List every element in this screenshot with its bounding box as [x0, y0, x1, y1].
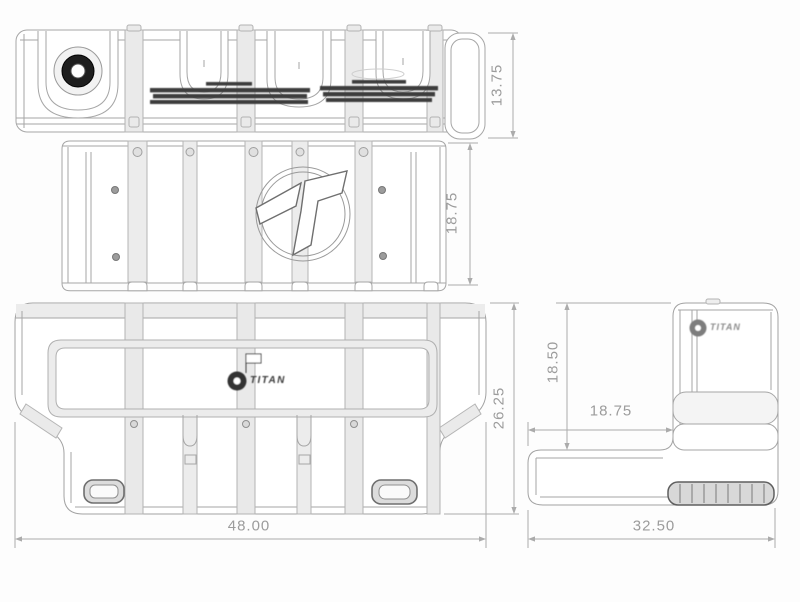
dim-label-bottom-width: 48.00: [228, 518, 271, 535]
fuel-cap-icon: [54, 47, 102, 95]
dim-label-side-leg: 18.75: [590, 403, 633, 420]
titan-wordmark-bottom: TITAN: [250, 375, 286, 386]
titan-logo-side-icon: [690, 320, 707, 337]
dim-label-top-height: 13.75: [489, 64, 506, 107]
bottom-view: [15, 303, 519, 548]
dim-label-front-height: 18.75: [444, 192, 461, 235]
titan-wordmark-side: TITAN: [710, 322, 741, 332]
side-view: [528, 299, 778, 548]
dim-label-side-height: 18.50: [545, 341, 562, 384]
dim-label-bottom-depth: 26.25: [491, 387, 508, 430]
dim-label-side-width: 32.50: [633, 518, 676, 535]
dim-side-height-lines: [556, 303, 671, 450]
drawing-canvas: 13.75 18.75 26.25 48.00 18.50 18.75 32.5…: [0, 0, 800, 602]
ribbed-fitting: [668, 482, 774, 505]
dim-side-leg-lines: [528, 422, 673, 446]
front-view: [62, 141, 478, 291]
top-view: [16, 25, 518, 139]
technical-drawing: [0, 0, 800, 602]
tank-end-cap: [445, 33, 485, 139]
